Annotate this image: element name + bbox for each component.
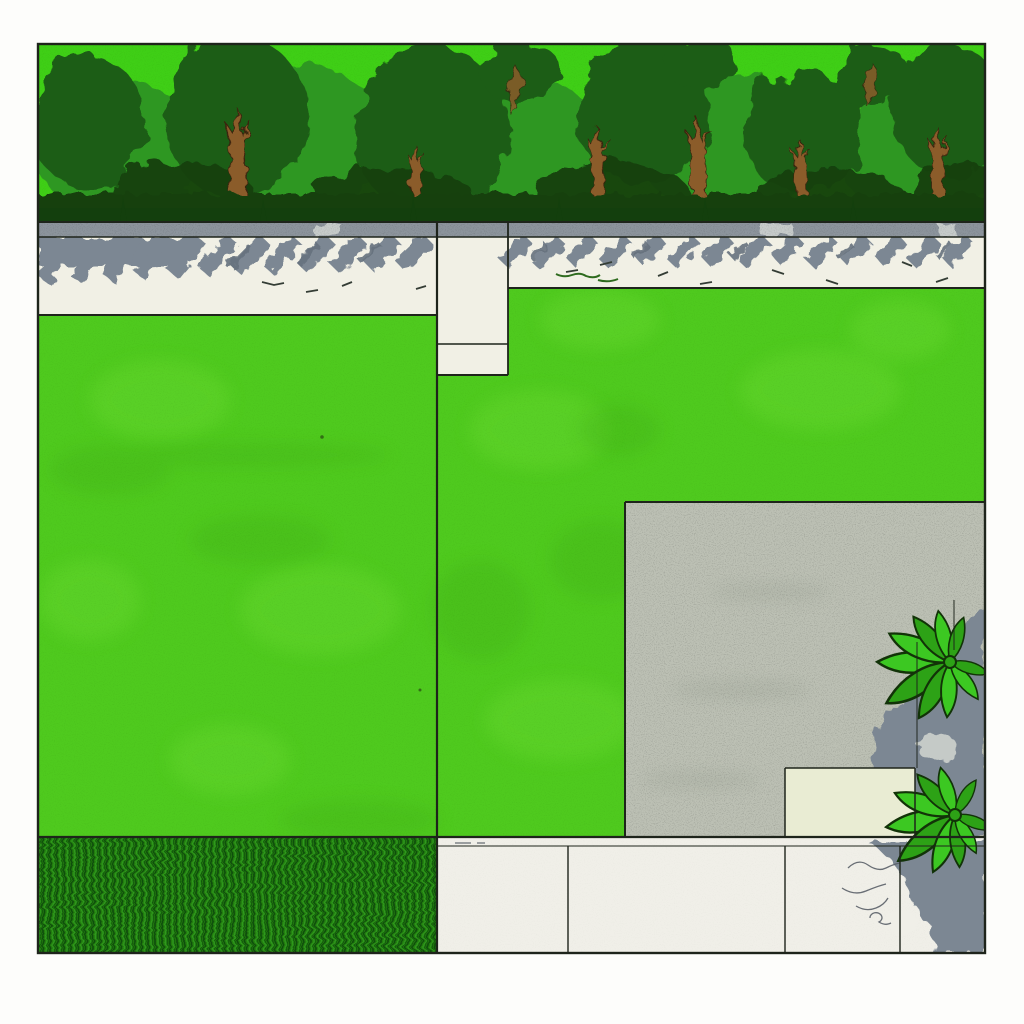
tree-hedge-understory xyxy=(38,194,985,222)
curb-strip xyxy=(38,222,985,237)
page xyxy=(0,0,1024,1024)
tree-hedge xyxy=(30,34,1010,224)
tall-grass-blades xyxy=(34,833,441,957)
garden-plan-illustration xyxy=(0,0,1024,1024)
paving-shadow-gap xyxy=(887,911,917,933)
tall-grass-strip xyxy=(34,833,441,957)
